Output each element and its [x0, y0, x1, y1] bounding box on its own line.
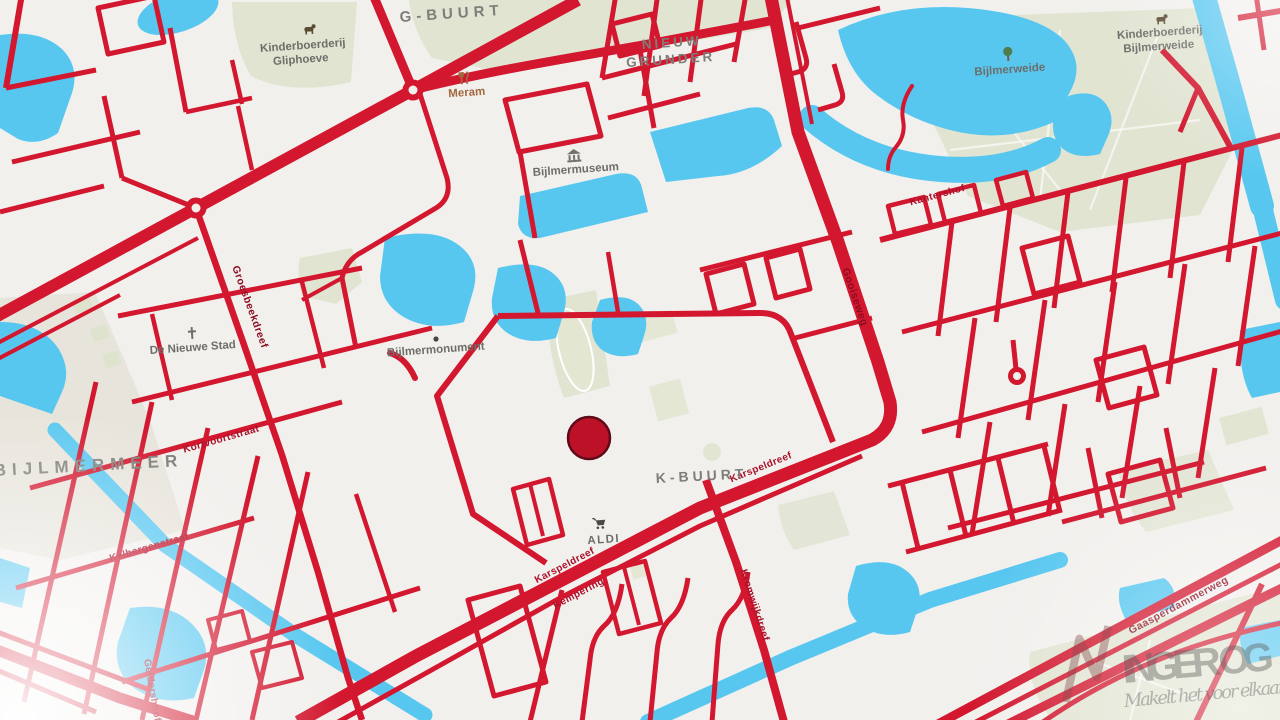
poi-label-aldi: ALDI	[587, 533, 621, 547]
map-canvas[interactable]: Karspeldreef Kempering Karspeldreef Krom…	[0, 0, 1280, 720]
map-marker[interactable]	[568, 417, 610, 459]
monument-dot-icon	[433, 336, 438, 341]
roundabout	[403, 80, 424, 101]
roundabout	[186, 198, 207, 219]
corner-fade	[1120, 0, 1280, 170]
corner-fade	[0, 420, 440, 720]
